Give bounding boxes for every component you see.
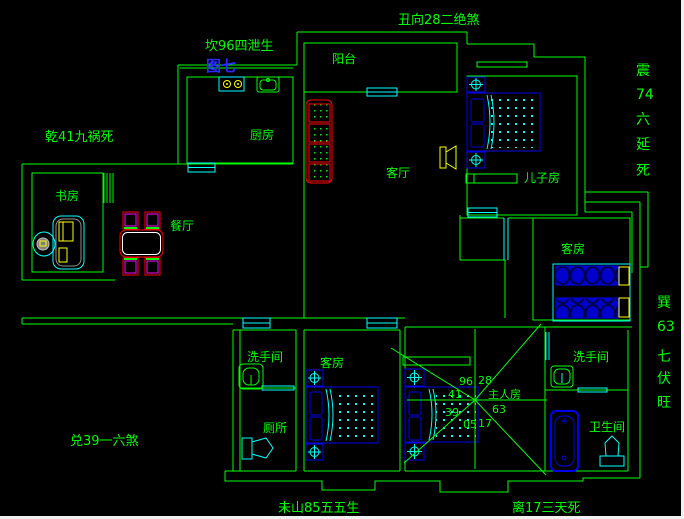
bathtub [551, 411, 578, 471]
toilet-base [600, 456, 624, 466]
sector-number: 39 [445, 406, 459, 419]
kitchen-walls [187, 77, 293, 163]
single-bed [556, 298, 629, 318]
pillow [310, 417, 322, 440]
annotation-se-char: 七 [657, 349, 671, 365]
chair-seat [147, 261, 158, 273]
dresser [403, 357, 470, 365]
chair-seat [147, 214, 158, 226]
dresser-frame [403, 357, 470, 365]
toilet-tank [242, 438, 252, 459]
tv [440, 146, 456, 169]
sector-number: 96 [459, 375, 473, 388]
room-label-living: 客厅 [386, 165, 410, 180]
annotation-east-char: 震 [636, 63, 650, 79]
nightstand [306, 444, 323, 460]
toilet [242, 438, 273, 459]
sector-line [475, 400, 546, 475]
annotation-bottom-right: 离17三天死 [512, 500, 581, 516]
annotation-se-char: 旺 [657, 395, 671, 411]
room-label-dining: 餐厅 [170, 218, 194, 233]
dresser [466, 174, 517, 183]
room-label-washroom-se: 洗手间 [573, 350, 609, 364]
bed-mattress [490, 97, 538, 148]
sector-number: 41 [448, 388, 462, 401]
computer-tower-icon [59, 248, 67, 262]
pillow [619, 267, 629, 285]
pillow [619, 298, 629, 317]
annotation-bottom-left: 未山85五五生 [278, 501, 360, 516]
bed-frame [556, 266, 618, 285]
hall-door [504, 218, 508, 260]
washroom-sw-fixtures [239, 364, 273, 459]
corridor-window-east [367, 318, 397, 328]
room-label-study: 书房 [55, 188, 79, 203]
dining-chair [123, 212, 138, 229]
room-label-balcony: 阳台 [332, 51, 356, 66]
room-label-kitchen: 厨房 [250, 127, 274, 142]
stove-icon [219, 77, 244, 91]
toilet-bowl [252, 438, 273, 458]
sector-number: 28 [478, 374, 492, 387]
single-bed [556, 266, 629, 285]
pillow [310, 392, 322, 415]
nightstand [405, 443, 424, 460]
annotation-west: 兑39一六煞 [70, 434, 139, 449]
annotation-north: 坎96四泄生 [205, 39, 274, 54]
annotation-se-char: 伏 [657, 371, 671, 387]
master-room-door [546, 332, 549, 360]
sofa-cushion [309, 124, 330, 142]
sector-line [391, 348, 475, 400]
desk [53, 216, 84, 269]
room-label-guest-south: 客房 [320, 355, 344, 370]
dining-chair [145, 258, 160, 275]
annotation-southeast-column: 巽 63 七 伏 旺 [657, 295, 675, 411]
blanket-fold [487, 95, 490, 149]
desk-chair [33, 232, 55, 256]
annotation-east-char: 延 [636, 137, 650, 153]
guest-room-south-furniture [306, 370, 378, 460]
sofa-cushion [309, 144, 330, 162]
kitchen-sink [257, 77, 279, 92]
corridor-window-west [243, 318, 270, 328]
annotation-top: 丑向28二绝煞 [398, 12, 480, 28]
computer-monitor-icon [59, 222, 73, 241]
tub-drain [562, 456, 566, 460]
son-room-south-window [468, 208, 497, 217]
chair-seat [125, 214, 136, 226]
washroom-se-fixtures [551, 366, 624, 471]
study-door-hatch [104, 173, 113, 203]
dining-table [120, 230, 163, 257]
burner-knob [237, 83, 239, 85]
room-label-washroom-sw: 洗手间 [247, 350, 283, 364]
blanket-fold [326, 389, 329, 441]
bed-mattress [333, 390, 376, 440]
sector-number: 05 [463, 418, 477, 431]
nightstand [467, 77, 485, 92]
annotation-east-char: 六 [636, 112, 650, 128]
master-room-furniture [403, 357, 478, 460]
bed-frame [556, 298, 618, 318]
burner-knob [226, 83, 228, 85]
toilet [600, 436, 624, 466]
chair-seat [125, 261, 136, 273]
dining-chair [145, 212, 160, 229]
dining-chair [123, 258, 138, 275]
desk-frame [53, 216, 84, 269]
south-facade-wall [225, 471, 640, 492]
room-label-bathroom-se: 卫生间 [589, 420, 625, 434]
balcony-walls [304, 43, 457, 92]
cad-canvas: 图七 丑向28二绝煞 坎96四泄生 乾41九祸死 兑39一六煞 未山85五五生 … [0, 0, 684, 519]
pillow [471, 124, 484, 147]
wash-basin [551, 366, 573, 387]
double-bed [467, 93, 540, 151]
floor-plan-drawing: 图七 丑向28二绝煞 坎96四泄生 乾41九祸死 兑39一六煞 未山85五五生 … [0, 0, 684, 519]
annotation-east-column: 震 74 六 延 死 [636, 63, 654, 179]
nightstand [467, 152, 485, 168]
annotation-east-char: 死 [636, 163, 650, 179]
balcony-window [367, 88, 397, 96]
sofa [306, 100, 332, 183]
room-label-son: 儿子房 [524, 170, 560, 185]
dining-set [120, 212, 163, 275]
sofa-cushion [309, 104, 330, 122]
sector-number: 17 [478, 417, 492, 430]
guest-room-east-furniture [553, 264, 630, 321]
sector-number: 63 [492, 403, 506, 416]
son-room-furniture [466, 77, 540, 183]
blanket-fold [433, 389, 436, 440]
blanket-fold [429, 389, 432, 440]
tv-icon [440, 147, 446, 168]
chair-seat [37, 238, 49, 250]
annotation-east-char: 74 [636, 87, 654, 103]
desk-top [56, 219, 81, 266]
toilet-bowl [605, 436, 619, 456]
dining-table-top [123, 233, 161, 255]
figure-label: 图七 [206, 57, 236, 75]
wash-basin [239, 364, 263, 389]
room-label-toilet-sw: 厕所 [263, 421, 287, 435]
annotation-se-char: 63 [657, 319, 675, 335]
room-label-master: 主人房 [488, 388, 521, 401]
blanket-fold [330, 389, 333, 441]
sofa-cushion [309, 164, 330, 181]
annotation-northwest: 乾41九祸死 [45, 130, 114, 145]
nightstand [405, 369, 424, 386]
double-bed [306, 387, 378, 443]
son-room-window [477, 62, 527, 67]
tv-screen [446, 146, 456, 169]
room-label-guest-east: 客房 [561, 241, 585, 256]
pillow [409, 392, 421, 415]
stove [219, 77, 244, 91]
nightstand [306, 370, 323, 386]
pillow [471, 99, 484, 122]
pillow [409, 417, 421, 440]
annotation-se-char: 巽 [657, 295, 671, 311]
